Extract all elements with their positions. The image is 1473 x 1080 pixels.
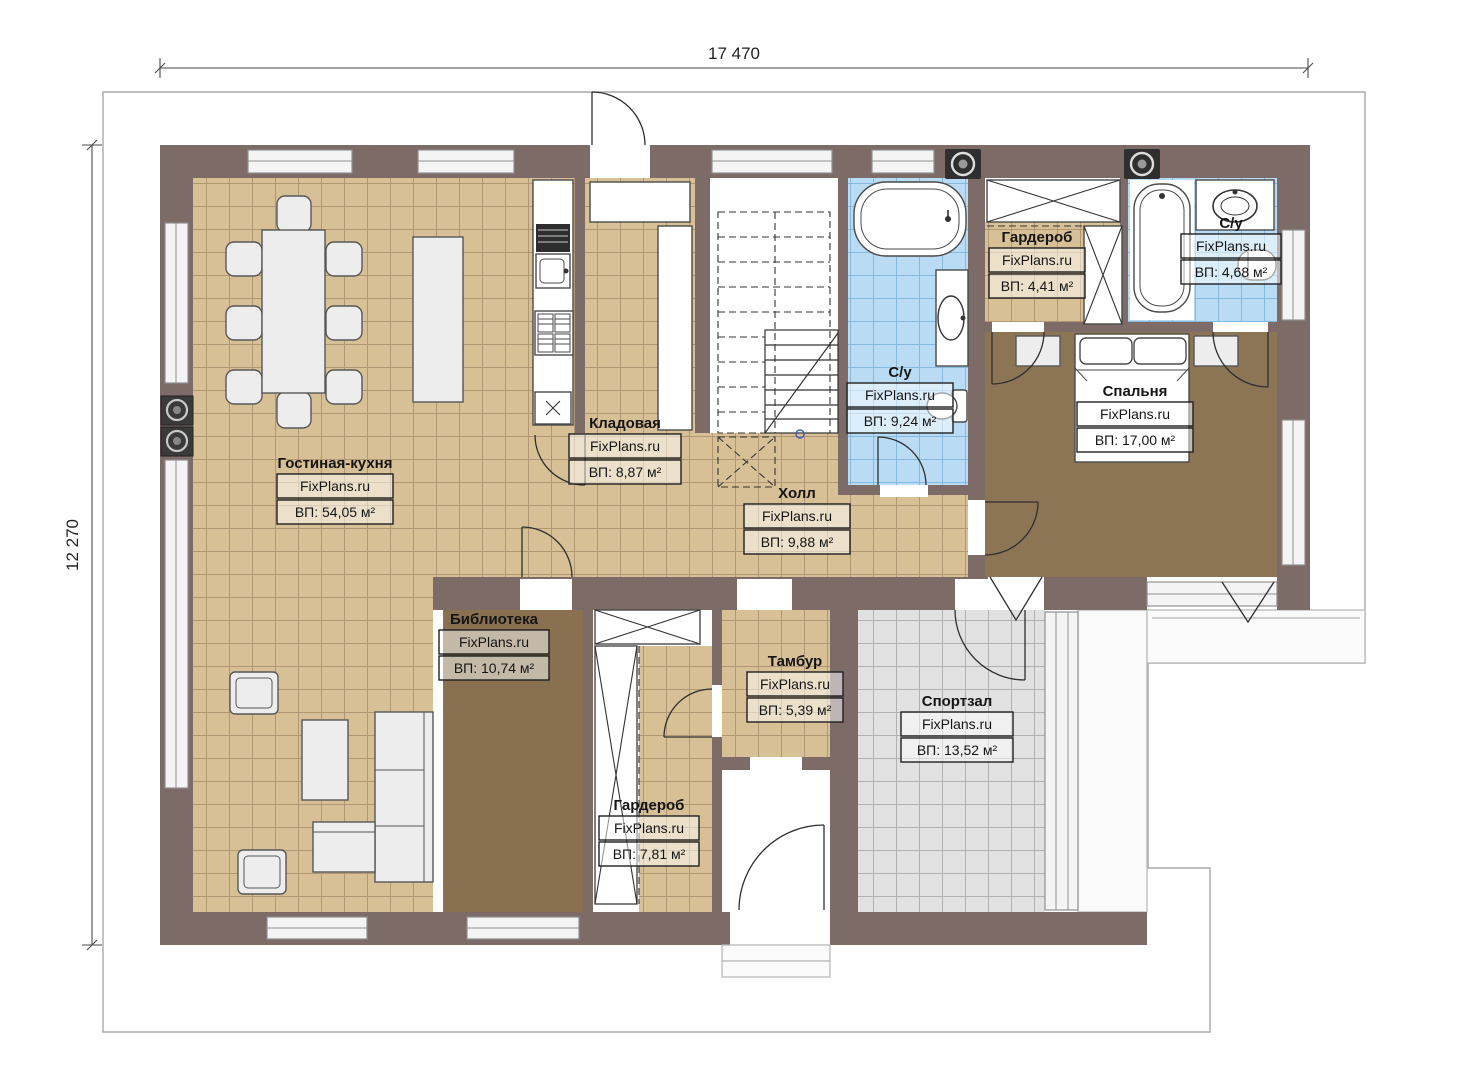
chair bbox=[326, 242, 362, 276]
stove-icon bbox=[535, 311, 573, 355]
walkway-strip bbox=[1078, 610, 1147, 912]
entry-steps bbox=[722, 945, 830, 977]
chair bbox=[226, 306, 262, 340]
watermark-text: FixPlans.ru bbox=[762, 508, 832, 524]
room-name: С/у bbox=[1219, 215, 1243, 232]
area-text: ВП: 4,41 м² bbox=[1001, 278, 1074, 294]
room-name: Библиотека bbox=[450, 611, 539, 628]
wall-bath1-bottom-b bbox=[928, 485, 968, 495]
area-text: ВП: 5,39 м² bbox=[759, 702, 832, 718]
area-text: ВП: 54,05 м² bbox=[295, 504, 376, 520]
wall-bath1-bottom-a bbox=[838, 485, 880, 495]
pantry-shelf-side bbox=[658, 226, 692, 430]
watermark-text: FixPlans.ru bbox=[1196, 238, 1266, 254]
kitchen-counter bbox=[533, 180, 573, 425]
door-entrance bbox=[739, 825, 824, 910]
dimension-left-label: 12 270 bbox=[63, 519, 82, 571]
wall-bottom-gym bbox=[830, 912, 1147, 945]
cabinet-icon bbox=[535, 392, 571, 424]
dimension-top: 17 470 bbox=[155, 44, 1313, 78]
dimension-top-label: 17 470 bbox=[708, 44, 760, 63]
wall-vestibule-stub-a bbox=[722, 757, 750, 770]
appliance-icon bbox=[536, 224, 570, 252]
window-right-2 bbox=[1282, 420, 1305, 565]
armchair bbox=[238, 850, 286, 894]
room-name: С/у bbox=[888, 364, 912, 381]
room-label-living-kitchen: Гостиная-кухня FixPlans.ru ВП: 54,05 м² bbox=[277, 455, 393, 524]
window-left-2 bbox=[165, 460, 188, 788]
chair bbox=[226, 242, 262, 276]
wall-kitchen-pantry bbox=[575, 178, 585, 433]
coffee-table bbox=[302, 720, 348, 800]
room-name: Кладовая bbox=[589, 415, 661, 432]
floor-plan-page: 17 470 12 270 bbox=[0, 0, 1473, 1080]
dining-table bbox=[262, 230, 325, 393]
kitchen-island bbox=[413, 237, 463, 402]
watermark-text: FixPlans.ru bbox=[760, 676, 830, 692]
vent-icon-1 bbox=[945, 149, 981, 179]
chair bbox=[326, 370, 362, 404]
window-gym-wall bbox=[1045, 612, 1078, 910]
nightstand bbox=[1016, 336, 1060, 366]
wall-pantry-stairs bbox=[695, 178, 710, 433]
wall-stairs-bath1 bbox=[838, 178, 848, 490]
watermark-text: FixPlans.ru bbox=[865, 387, 935, 403]
area-text: ВП: 13,52 м² bbox=[917, 742, 998, 758]
window-top-3 bbox=[712, 150, 832, 173]
watermark-text: FixPlans.ru bbox=[300, 478, 370, 494]
watermark-text: FixPlans.ru bbox=[1002, 252, 1072, 268]
watermark-text: FixPlans.ru bbox=[590, 438, 660, 454]
pantry-shelf-top bbox=[590, 182, 690, 222]
vent-icon-2 bbox=[1124, 149, 1160, 179]
area-text: ВП: 10,74 м² bbox=[454, 660, 535, 676]
window-left-1 bbox=[165, 223, 188, 383]
area-text: ВП: 17,00 м² bbox=[1095, 432, 1176, 448]
wall-vestibule-stub-b bbox=[802, 757, 830, 770]
room-name: Гардероб bbox=[614, 797, 685, 814]
window-bottom-2 bbox=[467, 917, 579, 939]
window-top-4 bbox=[872, 150, 934, 173]
kitchen-sink-icon bbox=[536, 254, 570, 288]
door-main-top bbox=[592, 92, 645, 145]
chair bbox=[326, 306, 362, 340]
floor-stairs bbox=[710, 178, 838, 433]
room-label-wardrobe-2: Гардероб FixPlans.ru ВП: 7,81 м² bbox=[599, 797, 699, 866]
room-name: Спортзал bbox=[922, 693, 993, 710]
bathtub-icon bbox=[854, 182, 966, 256]
window-bedroom-terrace bbox=[1147, 582, 1277, 606]
dimension-left: 12 270 bbox=[63, 140, 102, 950]
area-text: ВП: 9,88 м² bbox=[761, 534, 834, 550]
wall-entry-gym bbox=[830, 577, 858, 945]
watermark-text: FixPlans.ru bbox=[459, 634, 529, 650]
room-name: Гардероб bbox=[1002, 229, 1073, 246]
floor-plan-drawing: 17 470 12 270 bbox=[0, 0, 1473, 1080]
watermark-text: FixPlans.ru bbox=[1100, 406, 1170, 422]
area-text: ВП: 8,87 м² bbox=[589, 464, 662, 480]
window-top-2 bbox=[418, 150, 514, 173]
room-label-library: Библиотека FixPlans.ru ВП: 10,74 м² bbox=[439, 611, 549, 680]
vanity-sink-icon bbox=[936, 270, 968, 366]
window-top-1 bbox=[248, 150, 352, 173]
watermark-text: FixPlans.ru bbox=[614, 820, 684, 836]
chair bbox=[226, 370, 262, 404]
room-label-wardrobe-1: Гардероб FixPlans.ru ВП: 4,41 м² bbox=[989, 229, 1085, 298]
chair bbox=[277, 392, 311, 428]
area-text: ВП: 7,81 м² bbox=[613, 846, 686, 862]
room-name: Спальня bbox=[1103, 383, 1168, 400]
room-name: Гостиная-кухня bbox=[278, 455, 393, 472]
room-name: Тамбур bbox=[768, 653, 822, 670]
watermark-text: FixPlans.ru bbox=[922, 716, 992, 732]
room-name: Холл bbox=[778, 485, 816, 502]
window-bottom-1 bbox=[267, 917, 367, 939]
area-text: ВП: 4,68 м² bbox=[1195, 264, 1268, 280]
window-right-1 bbox=[1282, 230, 1305, 320]
chair bbox=[277, 196, 311, 232]
armchair bbox=[230, 672, 278, 714]
floor-wardrobe-2 bbox=[639, 646, 712, 912]
wall-wardrobe2-vestibule bbox=[712, 610, 722, 945]
area-text: ВП: 9,24 м² bbox=[864, 413, 937, 429]
wall-library-wardrobe2 bbox=[583, 610, 593, 912]
